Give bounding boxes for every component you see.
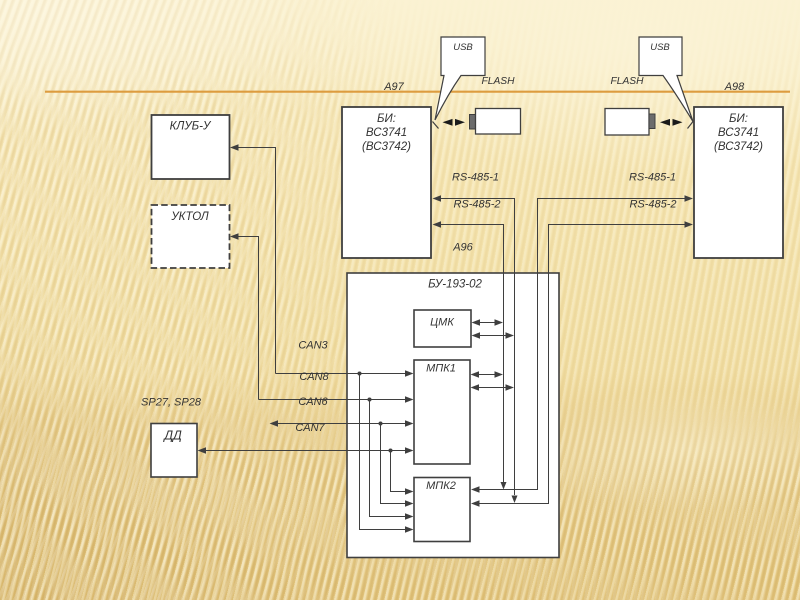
svg-text:FLASH: FLASH	[611, 75, 644, 87]
svg-text:RS-485-2: RS-485-2	[629, 199, 676, 211]
svg-text:RS-485-2: RS-485-2	[453, 199, 500, 211]
svg-text:CAN6: CAN6	[298, 396, 328, 408]
svg-text:УКТОЛ: УКТОЛ	[170, 211, 208, 223]
svg-text:(ВС3742): (ВС3742)	[714, 141, 763, 153]
svg-text:БИ:: БИ:	[377, 113, 396, 125]
svg-text:ВС3741: ВС3741	[366, 127, 407, 139]
svg-text:SP27, SP28: SP27, SP28	[141, 397, 202, 409]
svg-text:МПК2: МПК2	[426, 480, 456, 492]
svg-text:USB: USB	[650, 42, 670, 53]
svg-text:CAN3: CAN3	[298, 340, 328, 352]
svg-text:БИ:: БИ:	[729, 113, 748, 125]
svg-text:CAN8: CAN8	[299, 371, 329, 383]
svg-text:МПК1: МПК1	[426, 363, 456, 375]
svg-text:А96: А96	[452, 242, 473, 254]
svg-text:БУ-193-02: БУ-193-02	[428, 279, 482, 291]
svg-text:ЦМК: ЦМК	[430, 317, 454, 329]
svg-text:ДД: ДД	[162, 429, 182, 443]
svg-text:USB: USB	[453, 42, 473, 53]
svg-text:КЛУБ-У: КЛУБ-У	[170, 121, 212, 133]
svg-text:А98: А98	[724, 81, 745, 93]
svg-text:CAN7: CAN7	[295, 422, 325, 434]
svg-text:FLASH: FLASH	[482, 75, 515, 87]
svg-text:(ВС3742): (ВС3742)	[362, 141, 411, 153]
svg-text:ВС3741: ВС3741	[718, 127, 759, 139]
svg-text:RS-485-1: RS-485-1	[629, 172, 676, 184]
svg-text:RS-485-1: RS-485-1	[452, 172, 499, 184]
svg-text:А97: А97	[383, 81, 404, 93]
